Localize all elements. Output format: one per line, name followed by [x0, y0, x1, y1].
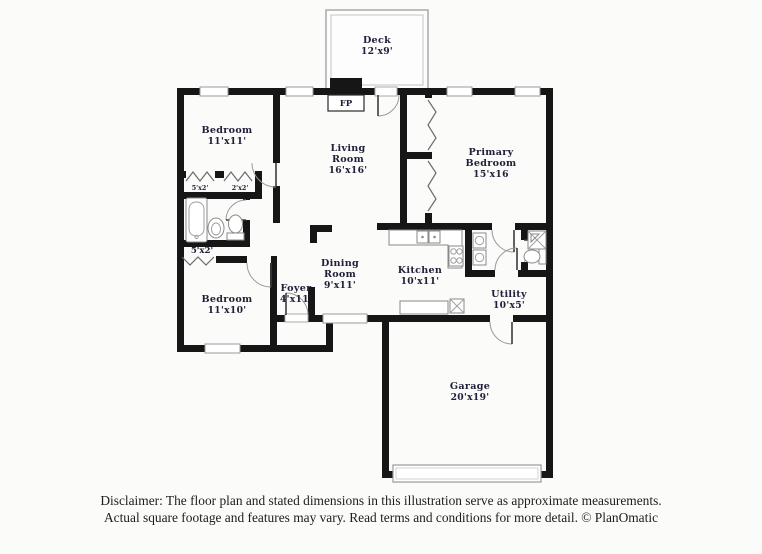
water-heater-icon [450, 299, 464, 313]
bifold-primary-closet-top [428, 100, 436, 150]
sink-icon [208, 218, 224, 238]
window [205, 344, 240, 353]
front-door-sill [285, 314, 308, 322]
lower-counter [400, 301, 448, 314]
bifold-primary-closet-bottom [428, 161, 436, 211]
deck-door [378, 95, 399, 116]
disclaimer: Disclaimer: The floor plan and stated di… [0, 492, 762, 526]
deck-dims: 12'x9' [361, 46, 393, 57]
toilet-icon [227, 215, 244, 240]
dryer-icon [473, 250, 486, 265]
window [286, 87, 313, 96]
kitchen-label: Kitchen [398, 265, 442, 276]
primary-dims: 15'x16 [473, 169, 509, 180]
utility-label: Utility [491, 289, 527, 300]
bifold-closet-right [224, 172, 252, 181]
dining-dims: 9'x11' [324, 280, 356, 291]
garage-door [393, 465, 541, 482]
fireplace: FP [328, 78, 364, 111]
deck-door-sill [375, 87, 397, 96]
living-label-1: Living [330, 143, 365, 154]
stove-icon [449, 246, 463, 266]
foyer-dims: 4'x11' [280, 294, 312, 305]
utility-dims: 10'x5' [493, 300, 525, 311]
bedroom2-label: Bedroom [201, 294, 252, 305]
shower-icon [528, 231, 546, 249]
floor-plan-drawing: FP [0, 0, 762, 554]
closet-left-dims: 5'x2' [192, 184, 209, 192]
window [515, 87, 540, 96]
window [447, 87, 472, 96]
dining-label-2: Room [324, 269, 356, 280]
living-label-2: Room [332, 154, 364, 165]
bifold-closet-left [186, 172, 214, 181]
fireplace-label: FP [340, 99, 353, 109]
floor-plan-page: FP [0, 0, 762, 554]
garage-dims: 20'x19' [451, 392, 490, 403]
garage-label: Garage [450, 381, 490, 392]
bedroom2-dims: 11'x10' [208, 305, 247, 316]
living-dims: 16'x16' [329, 165, 368, 176]
bedroom1-dims: 11'x11' [208, 136, 247, 147]
window [200, 87, 228, 96]
hall-closet-dims: 5'x2' [191, 246, 213, 256]
bifold-hall-closet [182, 257, 214, 265]
primary-label-2: Bedroom [465, 158, 516, 169]
foyer-label: Foyer [281, 283, 313, 294]
disclaimer-line-1: Disclaimer: The floor plan and stated di… [0, 492, 762, 509]
utility-garage-door [490, 322, 512, 344]
primary-label-1: Primary [468, 147, 513, 158]
toilet2-icon [524, 249, 546, 264]
bedroom1-label: Bedroom [201, 125, 252, 136]
window [323, 314, 367, 323]
washer-icon [473, 233, 486, 248]
bedroom2-door [247, 263, 271, 287]
closet-right-dims: 2'x2' [232, 184, 249, 192]
deck-label: Deck [363, 35, 391, 46]
bathtub-icon [186, 198, 207, 242]
dining-label-1: Dining [321, 258, 359, 269]
disclaimer-line-2: Actual square footage and features may v… [0, 509, 762, 526]
kitchen-dims: 10'x11' [401, 276, 440, 287]
